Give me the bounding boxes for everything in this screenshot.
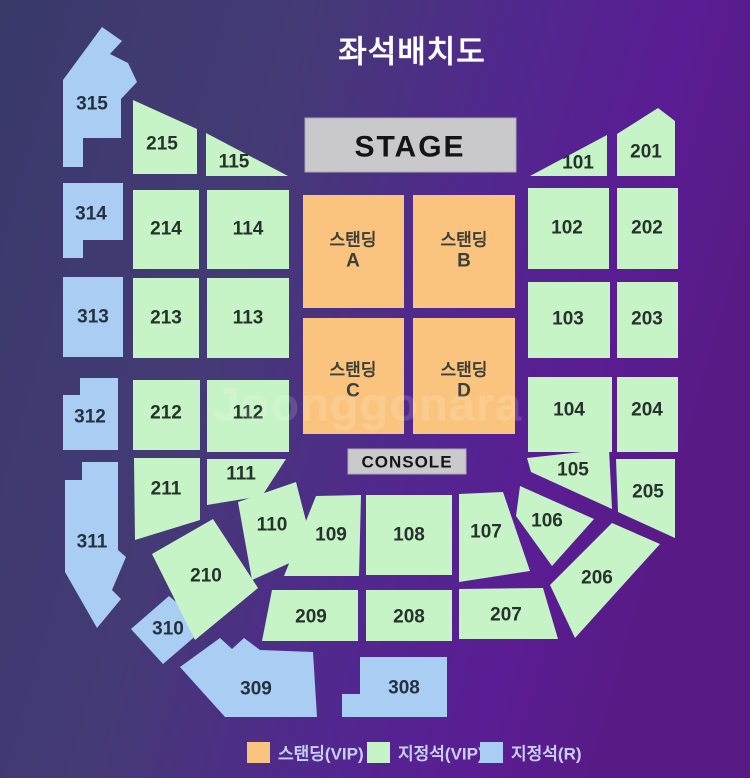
section-311-label: 311 (77, 532, 108, 553)
section-115-label: 115 (219, 152, 250, 173)
section-102-label: 102 (551, 218, 583, 239)
section-214-label: 214 (150, 219, 182, 240)
section-201-label: 201 (630, 142, 662, 163)
section-202-label: 202 (631, 218, 663, 239)
section-203-label: 203 (631, 309, 663, 330)
section-106-label: 106 (531, 511, 563, 532)
section-315-label: 315 (76, 94, 108, 115)
section-103-label: 103 (552, 309, 584, 330)
standing-b-letter: B (457, 251, 471, 272)
section-312-label: 312 (74, 407, 106, 428)
seat-map-canvas: 좌석배치도 STAGE 315 314 313 312 311 310 309 … (0, 0, 750, 778)
section-309-label: 309 (240, 679, 272, 700)
section-211-label: 211 (151, 479, 182, 500)
section-210-label: 210 (190, 566, 222, 587)
page-title: 좌석배치도 (338, 35, 486, 70)
section-101-label: 101 (562, 153, 594, 174)
section-204-label: 204 (631, 400, 663, 421)
section-208-label: 208 (393, 607, 425, 628)
seat-map: 좌석배치도 STAGE 315 314 313 312 311 310 309 … (0, 0, 750, 778)
section-108-label: 108 (393, 525, 425, 546)
stage-label: STAGE (354, 131, 465, 164)
section-213-label: 213 (150, 308, 182, 329)
section-314-label: 314 (75, 204, 107, 225)
section-205-label: 205 (632, 482, 664, 503)
section-212-label: 212 (150, 403, 182, 424)
watermark: Joonggonara (214, 378, 523, 431)
section-111-label: 111 (226, 464, 256, 485)
standing-a-letter: A (346, 251, 360, 272)
section-310-label: 310 (152, 619, 184, 640)
legend-reserved-r-label: 지정석(R) (511, 745, 582, 764)
section-114-label: 114 (233, 219, 264, 240)
section-107-label: 107 (470, 522, 502, 543)
section-109-label: 109 (315, 525, 347, 546)
console-label: CONSOLE (361, 453, 452, 472)
legend-standing-vip-label: 스탠딩(VIP) (278, 745, 364, 764)
section-215-label: 215 (146, 134, 178, 155)
section-110-label: 110 (257, 515, 288, 536)
section-313-label: 313 (77, 307, 109, 328)
section-105-label: 105 (557, 460, 589, 481)
legend-reserved-r-swatch (480, 742, 503, 763)
standing-b-name: 스탠딩 (441, 231, 488, 250)
legend-reserved-vip-label: 지정석(VIP) (398, 745, 484, 764)
standing-a-name: 스탠딩 (330, 231, 377, 250)
legend-reserved-vip-swatch (367, 742, 390, 763)
section-207-label: 207 (490, 605, 522, 626)
section-308-label: 308 (388, 678, 420, 699)
legend-standing-vip-swatch (247, 742, 270, 763)
section-209-label: 209 (295, 607, 327, 628)
section-104-label: 104 (553, 400, 585, 421)
section-113-label: 113 (233, 308, 264, 329)
section-206-label: 206 (581, 568, 613, 589)
